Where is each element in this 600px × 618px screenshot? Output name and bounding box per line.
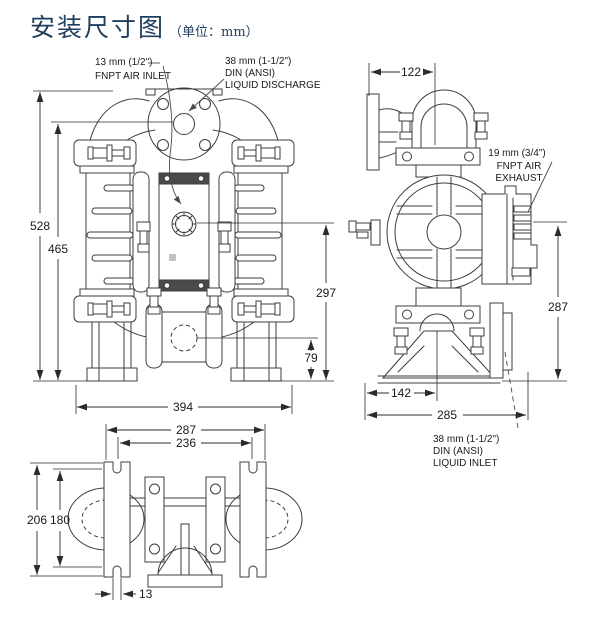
label-exhaust-name2: EXHAUST (495, 173, 542, 184)
label-discharge-size: 38 mm (1-1/2") (225, 56, 291, 67)
label-exhaust-size: 19 mm (3/4") (488, 148, 545, 159)
dim-front-foot-center-height: 79 (304, 351, 318, 365)
dim-bottom-inner-depth: 180 (50, 513, 70, 527)
dim-bottom-slot-width: 13 (139, 587, 153, 601)
label-exhaust-name1: FNPT AIR (497, 161, 542, 172)
label-inlet-size: 38 mm (1-1/2") (433, 434, 499, 445)
dim-bottom-slot-span: 236 (176, 436, 196, 450)
dim-front-port-height: 465 (48, 242, 68, 256)
label-air-inlet-size: 13 mm (1/2") (95, 57, 152, 68)
pump-drawing-svg: 528 465 297 79 394 (0, 0, 600, 618)
label-inlet-std: DIN (ANSI) (433, 446, 483, 457)
dim-side-base-center-width: 142 (391, 386, 411, 400)
label-discharge-name: LIQUID DISCHARGE (225, 80, 321, 91)
label-discharge-std: DIN (ANSI) (225, 68, 275, 79)
dim-side-right-height: 287 (548, 300, 568, 314)
front-view (74, 63, 294, 381)
label-air-inlet-name: FNPT AIR INLET (95, 71, 171, 82)
side-view (349, 90, 552, 428)
dim-front-overall-height: 528 (30, 219, 50, 233)
dim-front-overall-width: 394 (173, 400, 193, 414)
dim-side-top-width: 122 (401, 65, 421, 79)
dim-bottom-outer-width: 287 (176, 423, 196, 437)
dim-side-base-width: 285 (437, 408, 457, 422)
label-inlet-name: LIQUID INLET (433, 458, 497, 469)
dim-front-inlet-center-height: 297 (316, 286, 336, 300)
installation-dimension-drawing: 安装尺寸图（单位：mm） (0, 0, 600, 618)
dim-bottom-depth: 206 (27, 513, 47, 527)
bottom-view (68, 462, 302, 587)
